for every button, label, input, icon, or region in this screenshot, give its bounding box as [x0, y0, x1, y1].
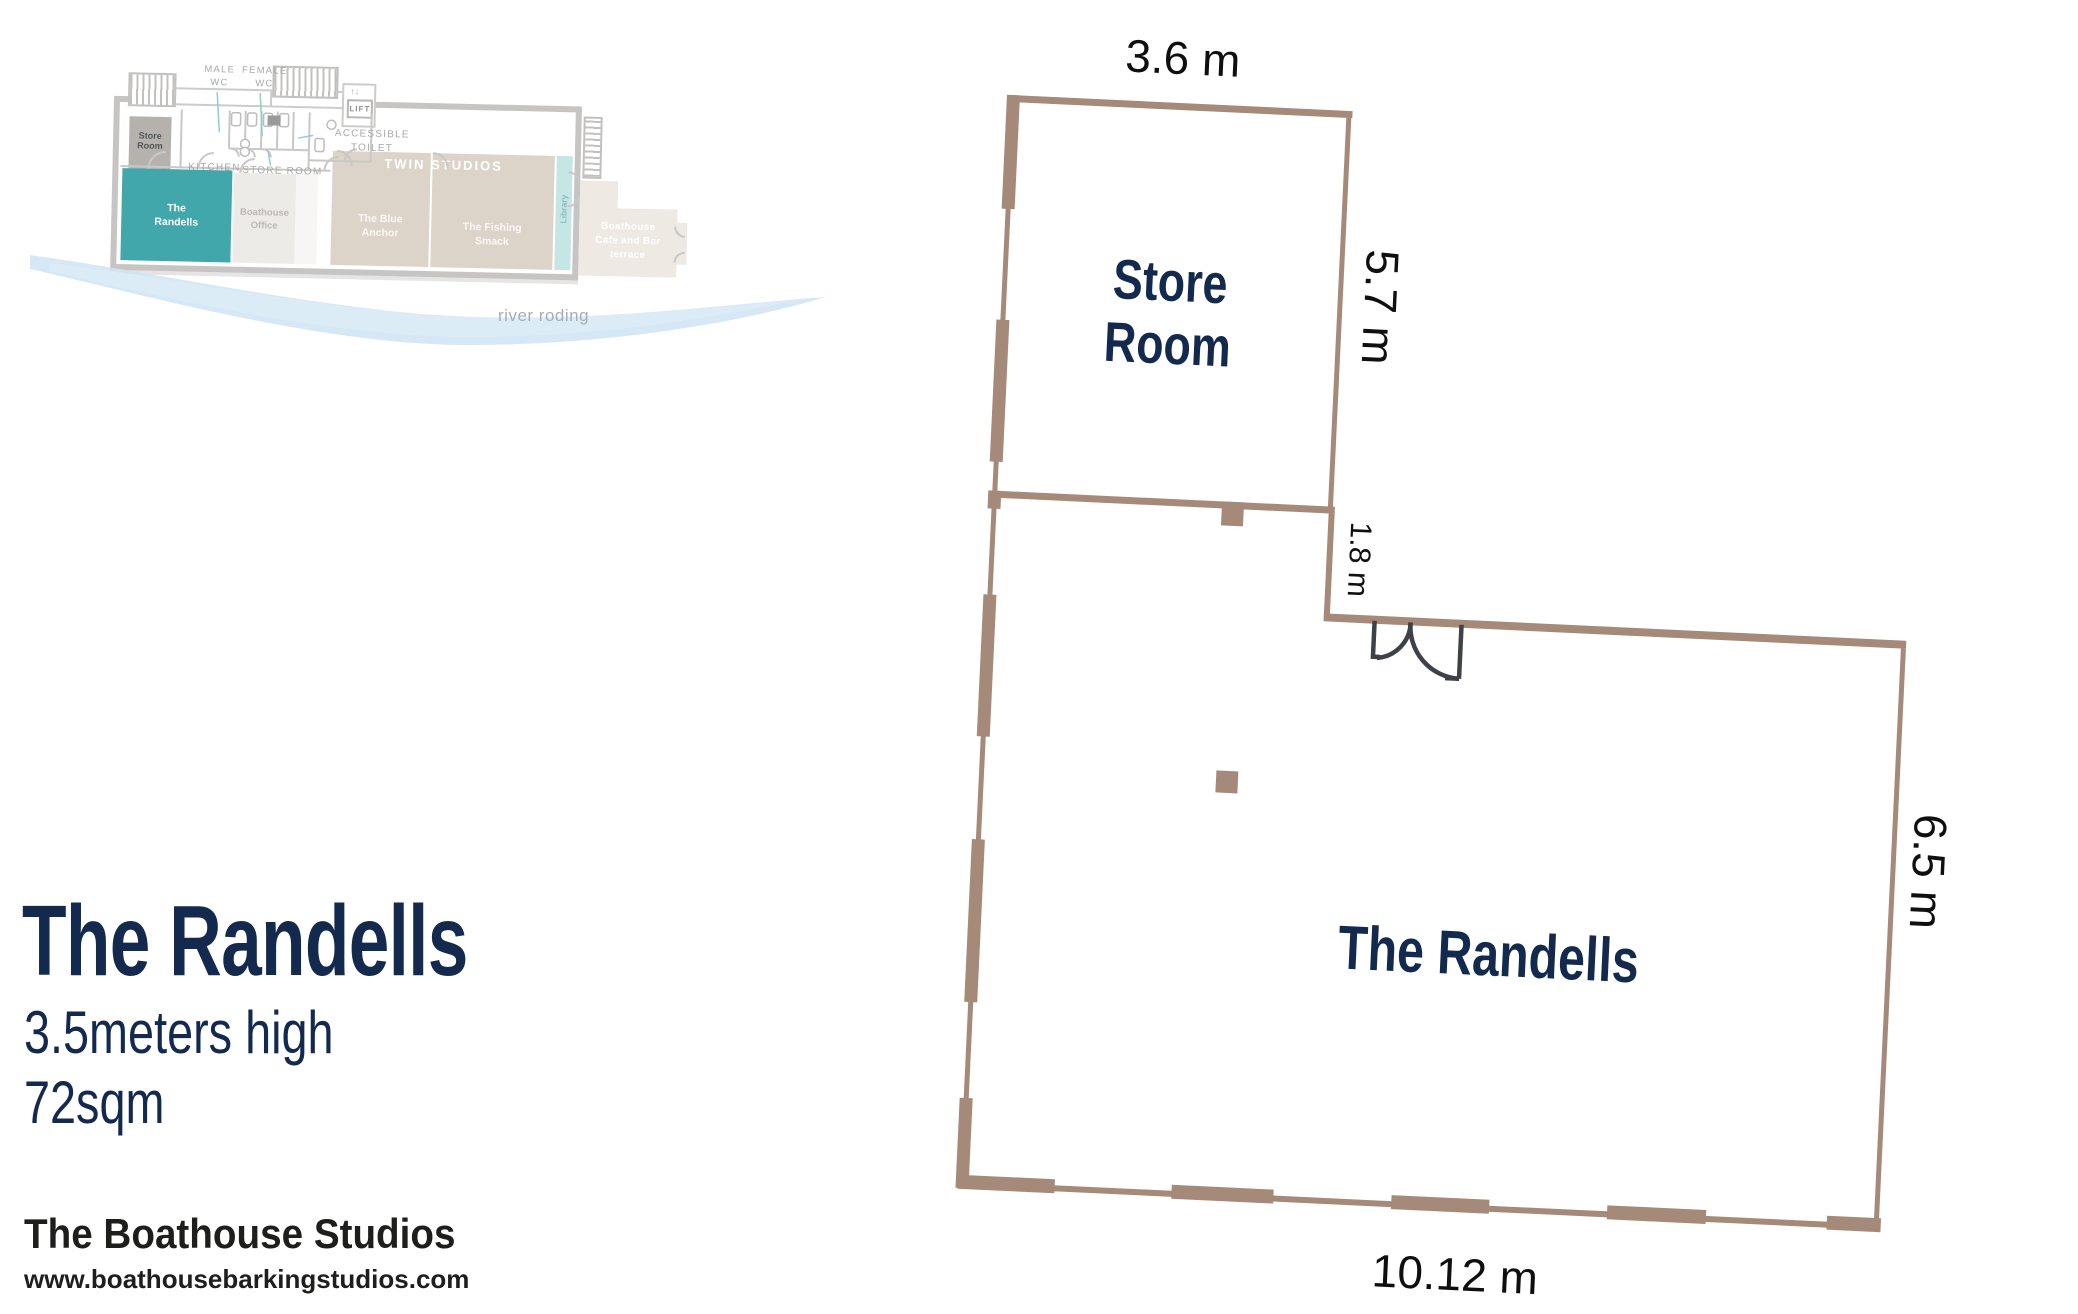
cistern-icon — [267, 115, 280, 125]
river-shape — [30, 245, 840, 365]
wall-store-right — [1328, 118, 1352, 512]
wall-left-segment — [988, 490, 1002, 509]
wall-left-segment — [964, 839, 985, 1002]
double-door-icon — [1358, 617, 1481, 693]
room-specs: 3.5meters high 72sqm — [24, 998, 334, 1138]
wall-store-left-segment — [990, 320, 1010, 462]
wall-store-top — [1011, 95, 1353, 118]
wall-connector — [1324, 513, 1335, 618]
pillar — [1221, 501, 1244, 526]
dimension-connector: 1.8 m — [1339, 509, 1378, 610]
floor-plan: Store Room The Randells 3.6 m 5.7 m 1.8 … — [954, 95, 2009, 1314]
wall-bottom-segment — [1391, 1195, 1490, 1214]
wall-bottom-segment — [1171, 1185, 1274, 1204]
page: ↑↓ LIFT Store Room The Randells Boathous… — [0, 0, 2078, 1314]
pillar — [1215, 770, 1238, 793]
plan-store-room-label: Store Room — [1062, 246, 1276, 381]
website-url: www.boathousebarkingstudios.com — [24, 1264, 469, 1295]
dimension-main-width: 10.12 m — [1344, 1242, 1566, 1306]
map-female-wc-label: FEMALE WC — [238, 65, 291, 92]
map-male-wc-label: MALE WC — [196, 64, 243, 91]
dimension-store-width: 3.6 m — [1072, 26, 1294, 90]
plan-main-room-label: The Randells — [1337, 913, 1574, 993]
wall-divider — [992, 491, 1335, 514]
map-accessible-toilet-label: ACCESSIBLE TOILET — [315, 126, 430, 156]
wall-left-segment — [977, 594, 997, 736]
wall-bottom-segment — [1826, 1216, 1881, 1233]
brand-name: The Boathouse Studios — [24, 1210, 455, 1258]
river-label: river roding — [498, 306, 589, 326]
dimension-store-height: 5.7 m — [1348, 196, 1412, 418]
wall-bottom-segment — [957, 1175, 1055, 1194]
dimension-main-height: 6.5 m — [1896, 766, 1960, 978]
map-store-room-label: STORE ROOM — [234, 164, 330, 180]
page-title: The Randells — [22, 884, 468, 999]
wall-bottom-segment — [1607, 1205, 1707, 1224]
wall-store-left-segment — [1002, 95, 1020, 209]
